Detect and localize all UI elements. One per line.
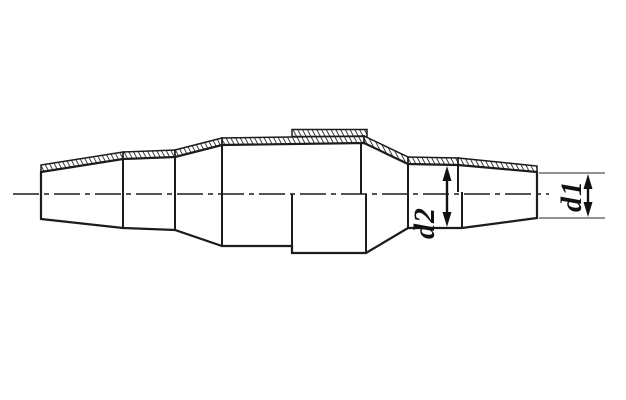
dimension-d1: d1 [539, 173, 605, 218]
d1-label: d1 [555, 180, 588, 212]
hatch-patch-raised-strip [292, 130, 367, 137]
d2-arrowhead-down [443, 212, 452, 227]
technical-drawing-canvas: d2 d1 [0, 0, 626, 400]
d2-label: d2 [408, 207, 441, 239]
d2-arrowhead-up [443, 166, 452, 181]
cable-joint-sleeve-drawing: d2 d1 [0, 0, 626, 400]
